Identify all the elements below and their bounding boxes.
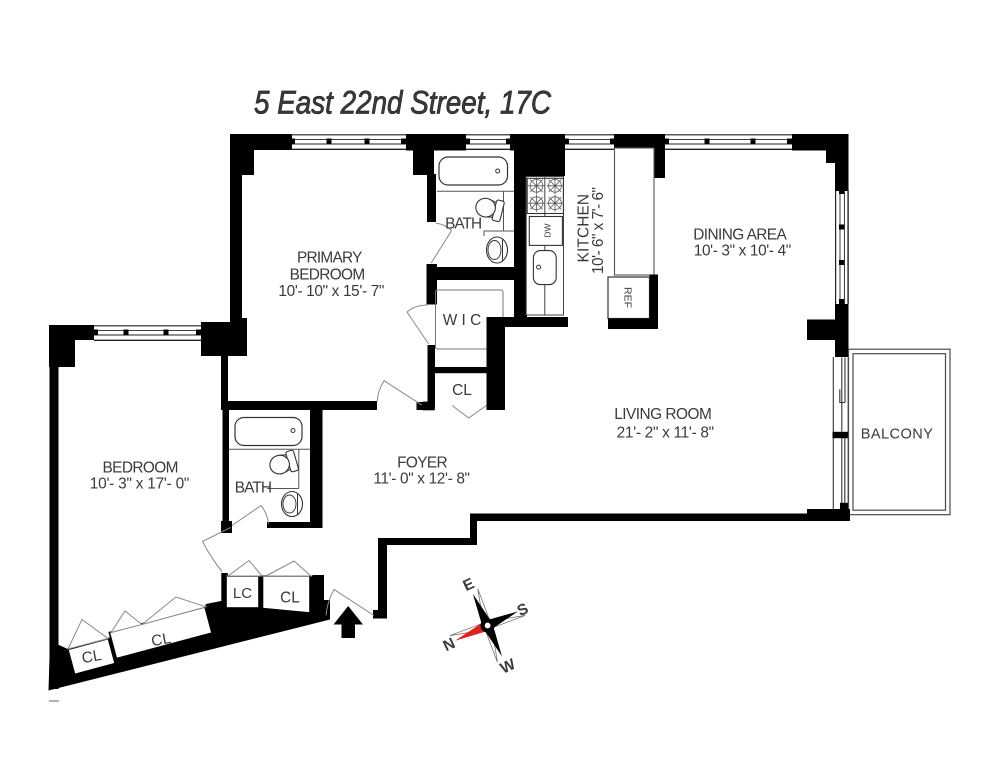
svg-text:REF: REF: [622, 287, 634, 308]
svg-text:CL: CL: [280, 590, 300, 607]
svg-text:LC: LC: [233, 585, 252, 602]
svg-text:BATH: BATH: [235, 480, 272, 497]
svg-text:PRIMARY: PRIMARY: [297, 249, 362, 266]
svg-text:BEDROOM: BEDROOM: [290, 266, 366, 283]
svg-text:BALCONY: BALCONY: [861, 427, 934, 443]
svg-text:5 East 22nd Street, 17C: 5 East 22nd Street, 17C: [254, 85, 551, 121]
svg-text:10'- 3" x 10'- 4": 10'- 3" x 10'- 4": [694, 243, 792, 260]
svg-text:W I C: W I C: [443, 312, 482, 329]
svg-text:11'- 0" x 12'- 8": 11'- 0" x 12'- 8": [373, 470, 470, 487]
svg-text:BATH: BATH: [445, 216, 482, 233]
svg-text:CL: CL: [452, 382, 472, 399]
svg-text:FOYER: FOYER: [397, 454, 448, 471]
svg-text:LIVING ROOM: LIVING ROOM: [614, 406, 712, 423]
svg-text:10'- 3" x 17'- 0": 10'- 3" x 17'- 0": [90, 476, 190, 493]
svg-text:10'- 10" x 15'- 7": 10'- 10" x 15'- 7": [278, 283, 384, 300]
svg-text:CL: CL: [150, 630, 173, 650]
svg-text:DW: DW: [543, 223, 553, 237]
svg-text:DINING AREA: DINING AREA: [693, 227, 787, 244]
svg-text:BEDROOM: BEDROOM: [103, 459, 179, 476]
svg-text:10'- 6" x 7'- 6": 10'- 6" x 7'- 6": [590, 187, 607, 274]
svg-text:21'- 2" x 11'- 8": 21'- 2" x 11'- 8": [617, 424, 715, 441]
svg-text:CL: CL: [81, 647, 104, 667]
